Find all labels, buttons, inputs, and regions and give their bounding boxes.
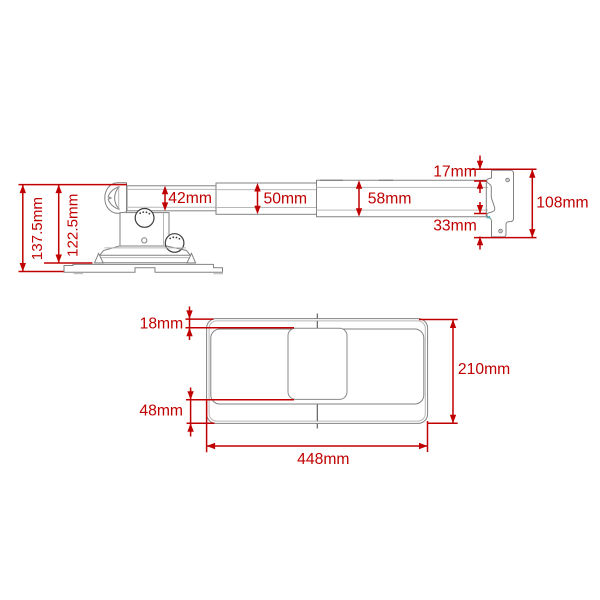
svg-text:42mm: 42mm	[168, 190, 212, 207]
svg-text:210mm: 210mm	[458, 361, 510, 378]
svg-text:58mm: 58mm	[368, 191, 412, 208]
svg-text:50mm: 50mm	[264, 191, 308, 208]
svg-text:17mm: 17mm	[433, 164, 477, 181]
svg-text:122.5mm: 122.5mm	[65, 194, 82, 257]
svg-text:108mm: 108mm	[536, 195, 588, 212]
svg-text:33mm: 33mm	[433, 218, 477, 235]
svg-text:448mm: 448mm	[297, 451, 349, 468]
svg-text:137.5mm: 137.5mm	[29, 197, 46, 260]
svg-text:18mm: 18mm	[140, 316, 184, 333]
svg-text:48mm: 48mm	[139, 403, 183, 420]
